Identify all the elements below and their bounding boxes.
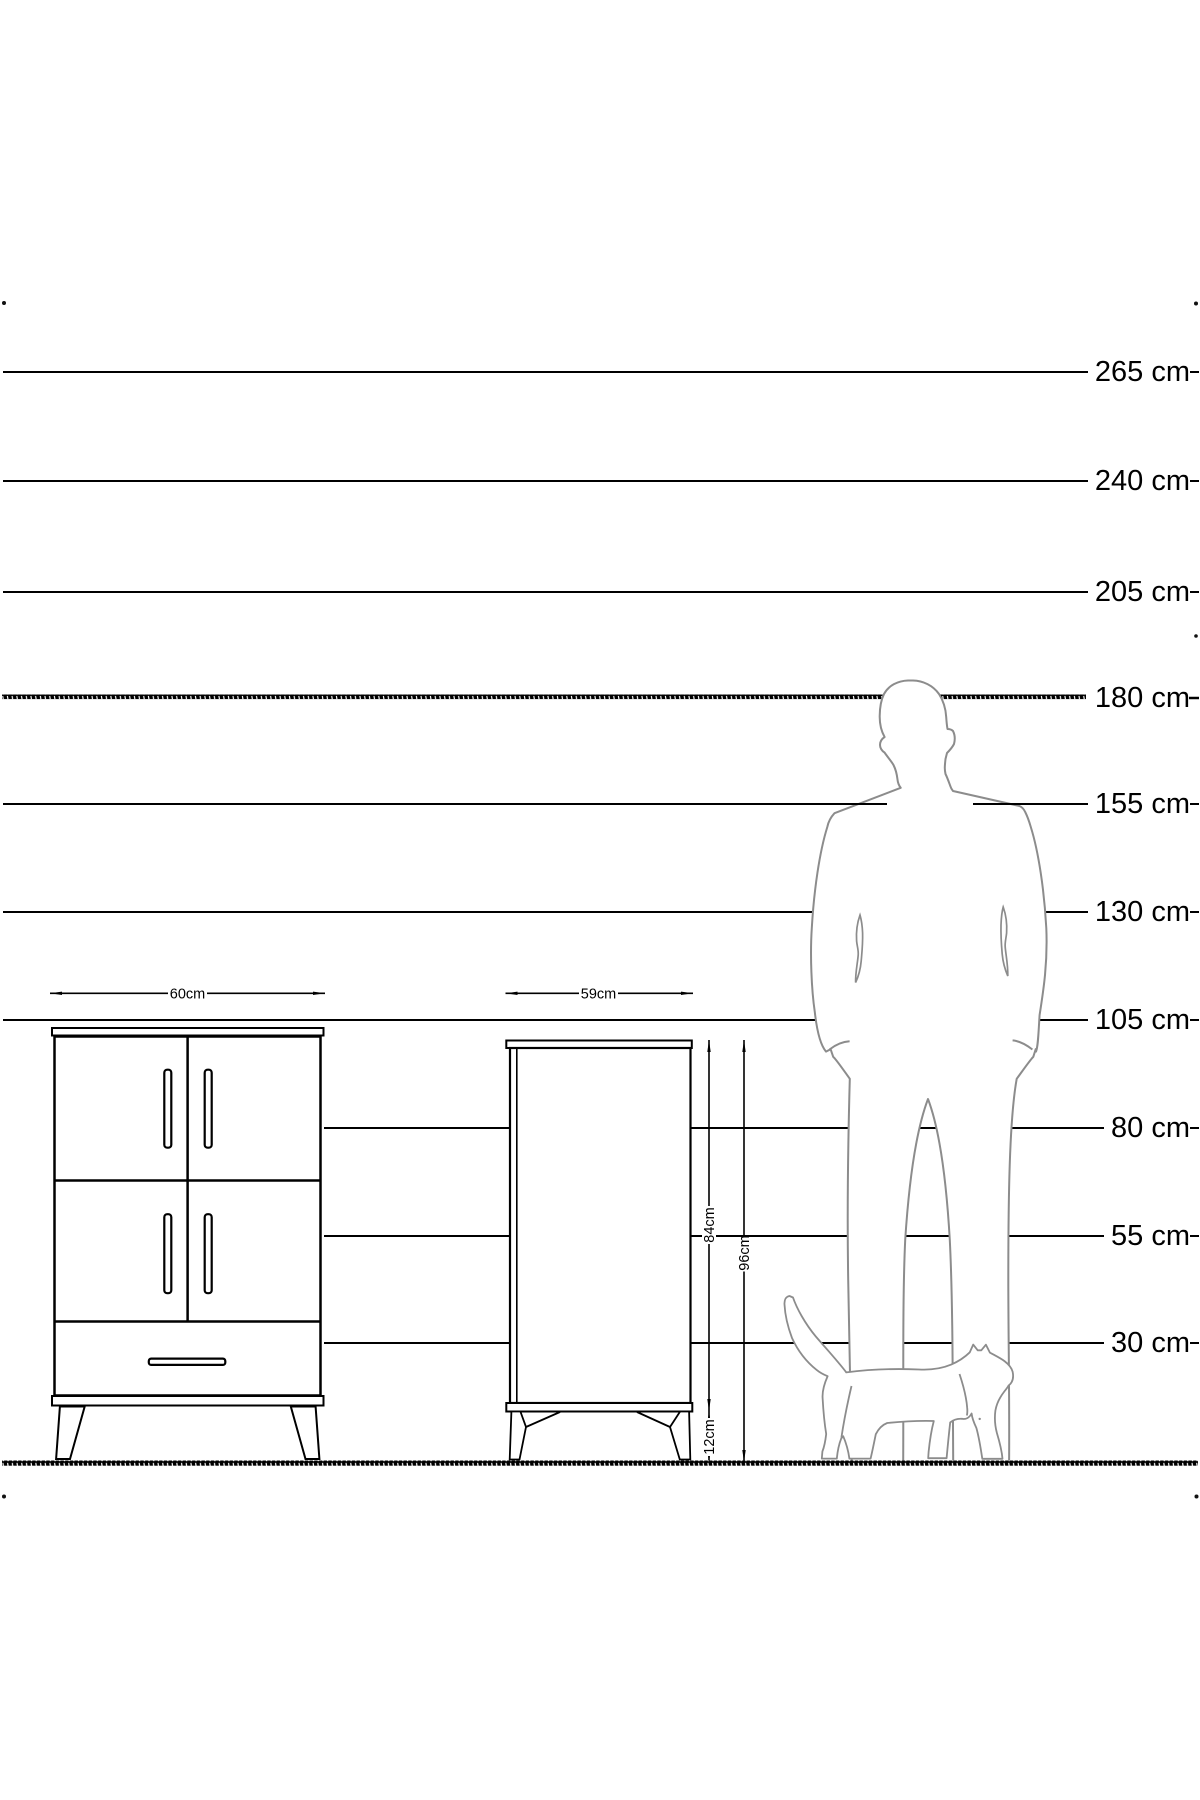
svg-text:30 cm: 30 cm: [1111, 1327, 1190, 1359]
svg-text:60cm: 60cm: [170, 987, 205, 1003]
svg-text:59cm: 59cm: [581, 987, 616, 1003]
svg-text:180 cm: 180 cm: [1095, 682, 1190, 714]
svg-text:80 cm: 80 cm: [1111, 1112, 1190, 1144]
svg-text:84cm: 84cm: [702, 1207, 718, 1242]
svg-text:155 cm: 155 cm: [1095, 788, 1190, 820]
svg-text:240 cm: 240 cm: [1095, 465, 1190, 497]
svg-text:96cm: 96cm: [737, 1235, 753, 1270]
svg-text:12cm: 12cm: [702, 1419, 718, 1454]
svg-text:55 cm: 55 cm: [1111, 1220, 1190, 1252]
svg-text:205 cm: 205 cm: [1095, 576, 1190, 608]
svg-text:265 cm: 265 cm: [1095, 356, 1190, 388]
svg-text:105 cm: 105 cm: [1095, 1004, 1190, 1036]
svg-text:130 cm: 130 cm: [1095, 896, 1190, 928]
